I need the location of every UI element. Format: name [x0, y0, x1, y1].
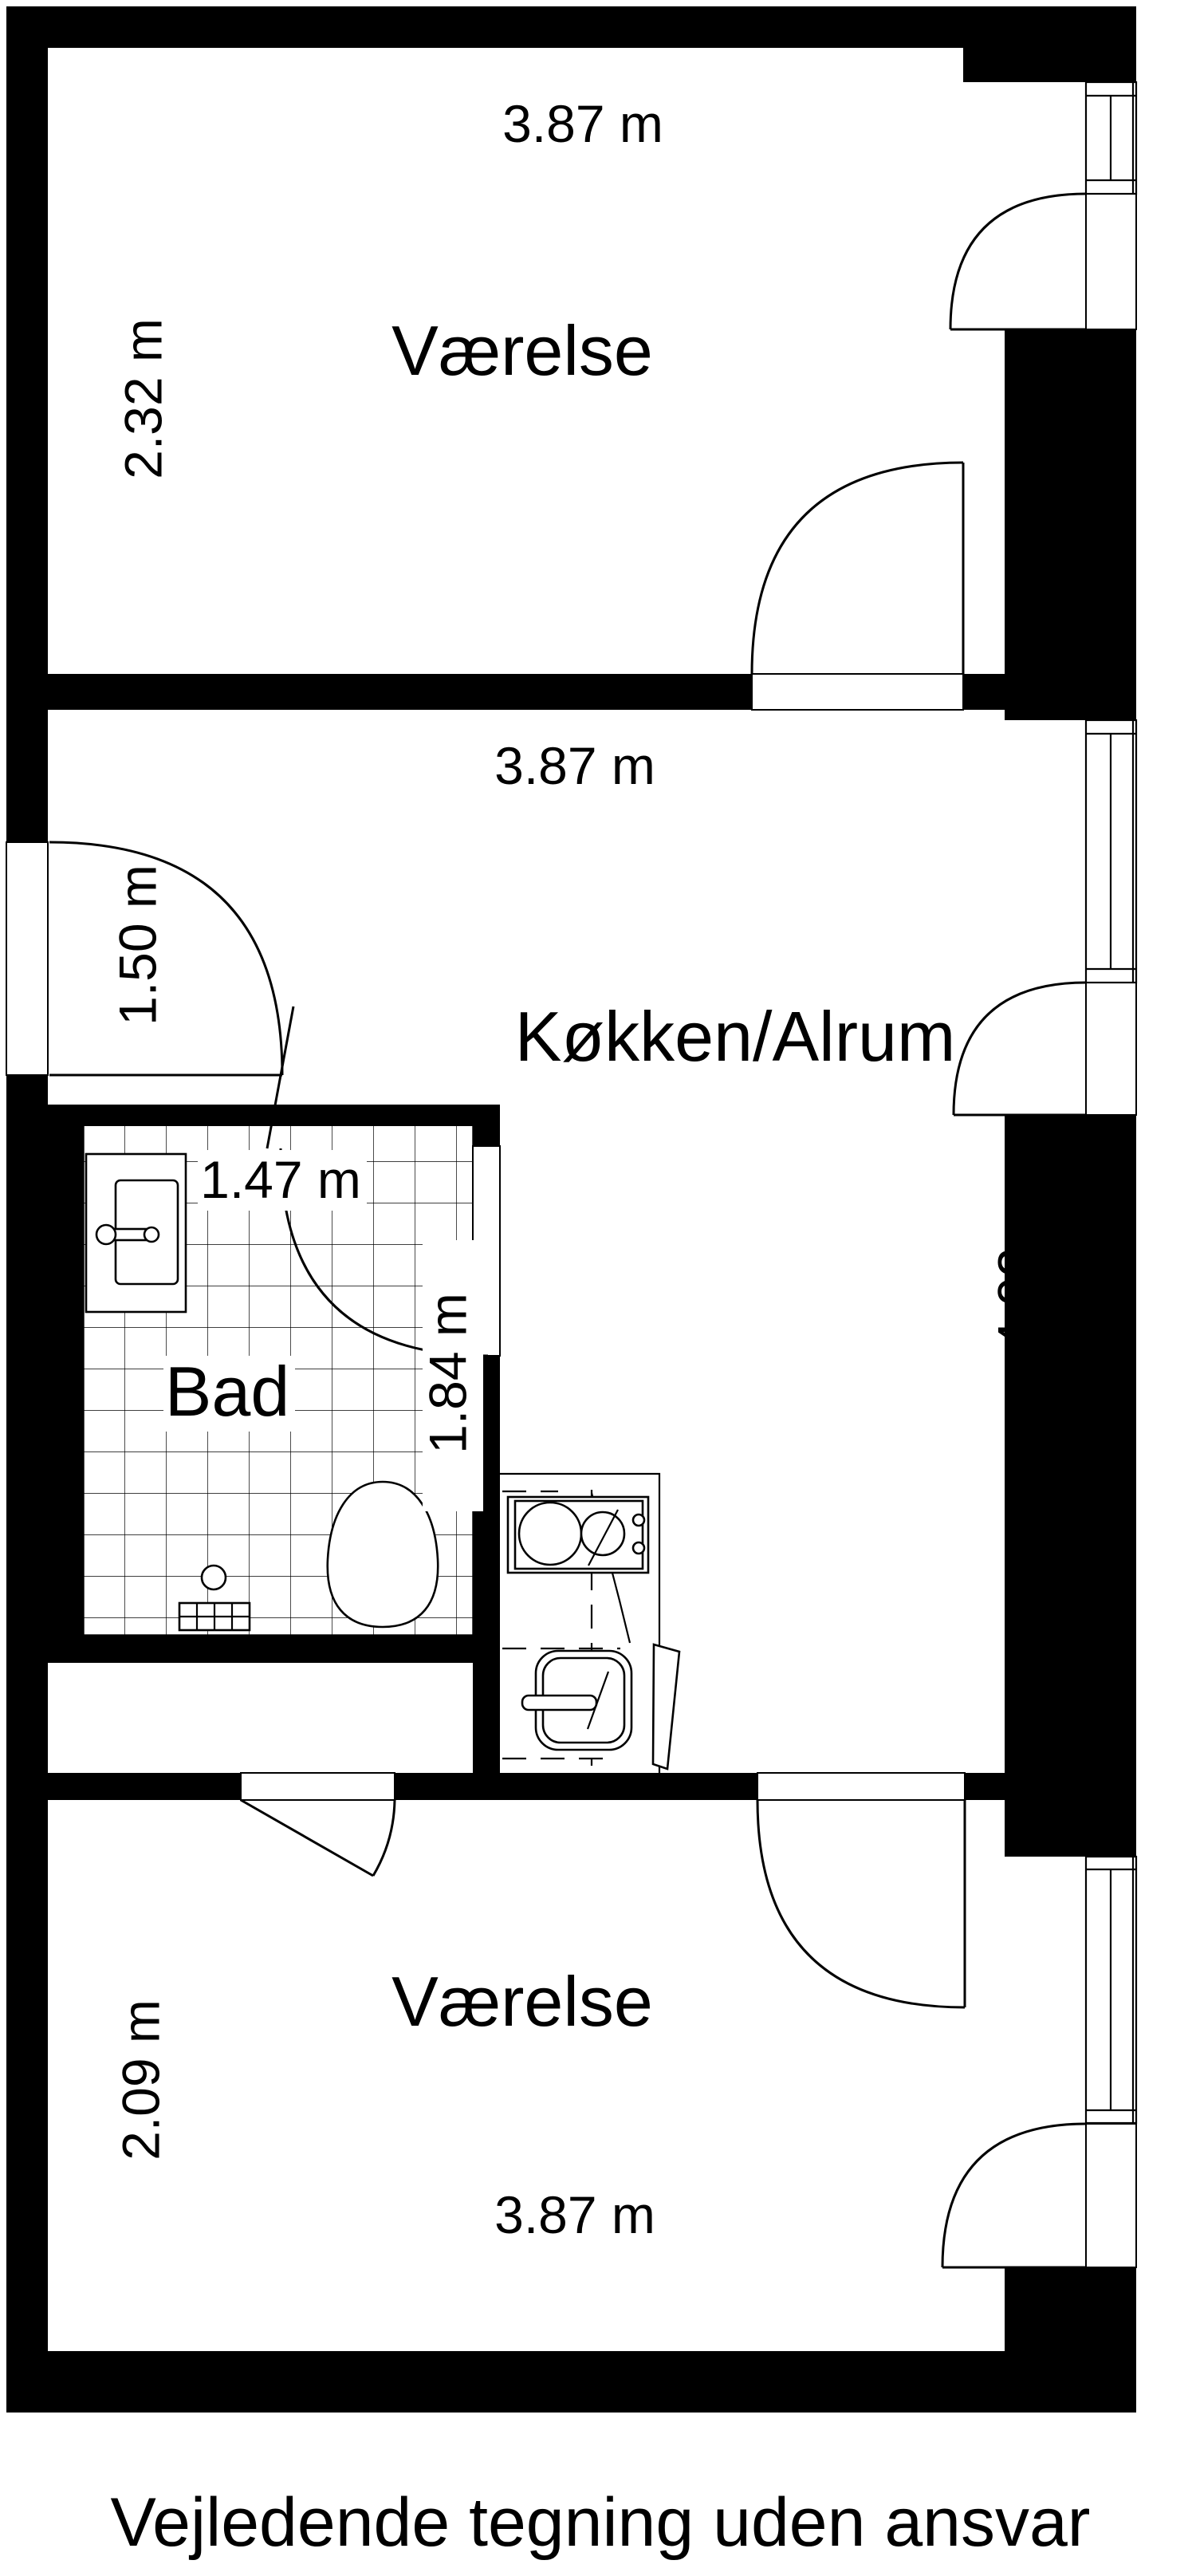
- balcony-door-opening-top: [1086, 194, 1136, 329]
- washing-machine: [522, 1651, 631, 1750]
- toilet: [328, 1482, 438, 1627]
- bathroom-wall-left: [48, 1105, 84, 1663]
- balcony-door-swing-bottom: [942, 2124, 1086, 2267]
- window-top-room: [1086, 82, 1136, 194]
- bathroom-name: Bad: [165, 1352, 290, 1431]
- wall-top-room-kitchen-stub: [963, 674, 1005, 710]
- right-wall-segment-3: [1005, 2267, 1136, 2413]
- bottom-room-door-swing-left: [241, 1800, 395, 1876]
- bathroom-width-label: 1.47 m: [200, 1150, 361, 1209]
- top-wall: [6, 6, 1005, 48]
- kitchen-height-label: 4.02 m: [986, 1189, 1045, 1350]
- kitchen-width-label: 3.87 m: [494, 736, 655, 795]
- top-room-door-opening: [752, 674, 963, 710]
- wall-kitchen-bottom-room-mid: [395, 1773, 757, 1800]
- balcony-door-opening-bottom: [1086, 2124, 1136, 2267]
- right-wall-segment-1: [1005, 329, 1136, 720]
- bathroom-wall-right-upper: [473, 1125, 500, 1146]
- top-room-width-label: 3.87 m: [502, 94, 663, 153]
- window-kitchen: [1086, 720, 1136, 983]
- balcony-door-opening-kitchen: [1086, 983, 1136, 1115]
- wall-kitchen-bottom-room-right: [965, 1773, 1005, 1800]
- cabinet-door-leaf: [653, 1644, 679, 1769]
- entrance-opening: [6, 842, 48, 1075]
- top-room-door-swing: [752, 463, 963, 674]
- top-room-height-label: 2.32 m: [113, 318, 172, 479]
- kitchen-name: Køkken/Alrum: [515, 997, 956, 1076]
- balcony-door-swing-top: [950, 194, 1086, 329]
- bathroom-sink: [86, 1154, 186, 1312]
- floorplan-page: 3.87 m 2.32 m Værelse 3.87 m 1.50 m Køkk…: [0, 0, 1196, 2576]
- top-right-corner-wall: [963, 6, 1136, 82]
- bathroom-height-label: 1.84 m: [418, 1293, 477, 1454]
- bottom-wall: [6, 2351, 1136, 2413]
- bathroom-wall-bottom: [48, 1635, 500, 1663]
- wall-top-room-kitchen: [48, 674, 752, 710]
- bottom-room-door-opening-right: [757, 1773, 965, 1800]
- kitchen-sink: [508, 1497, 648, 1573]
- bottom-room-door-opening-left: [241, 1773, 395, 1800]
- top-room-name: Værelse: [391, 311, 653, 390]
- bottom-room-width-label: 3.87 m: [494, 2185, 655, 2244]
- bottom-room-height-label: 2.09 m: [111, 1999, 170, 2160]
- window-bottom-room: [1086, 1857, 1136, 2123]
- wall-kitchen-bottom-room-left: [48, 1773, 241, 1800]
- left-wall-lower: [6, 1075, 48, 2413]
- balcony-door-swing-kitchen: [954, 983, 1086, 1115]
- floorplan-drawing: 3.87 m 2.32 m Værelse 3.87 m 1.50 m Køkk…: [0, 0, 1196, 2576]
- drawing-disclaimer-caption: Vejledende tegning uden ansvar: [111, 2484, 1091, 2561]
- left-wall-upper: [6, 6, 48, 842]
- bottom-room-name: Værelse: [391, 1962, 653, 2041]
- kitchen-entry-label: 1.50 m: [108, 865, 167, 1026]
- bottom-room-door-swing-right: [757, 1800, 965, 2007]
